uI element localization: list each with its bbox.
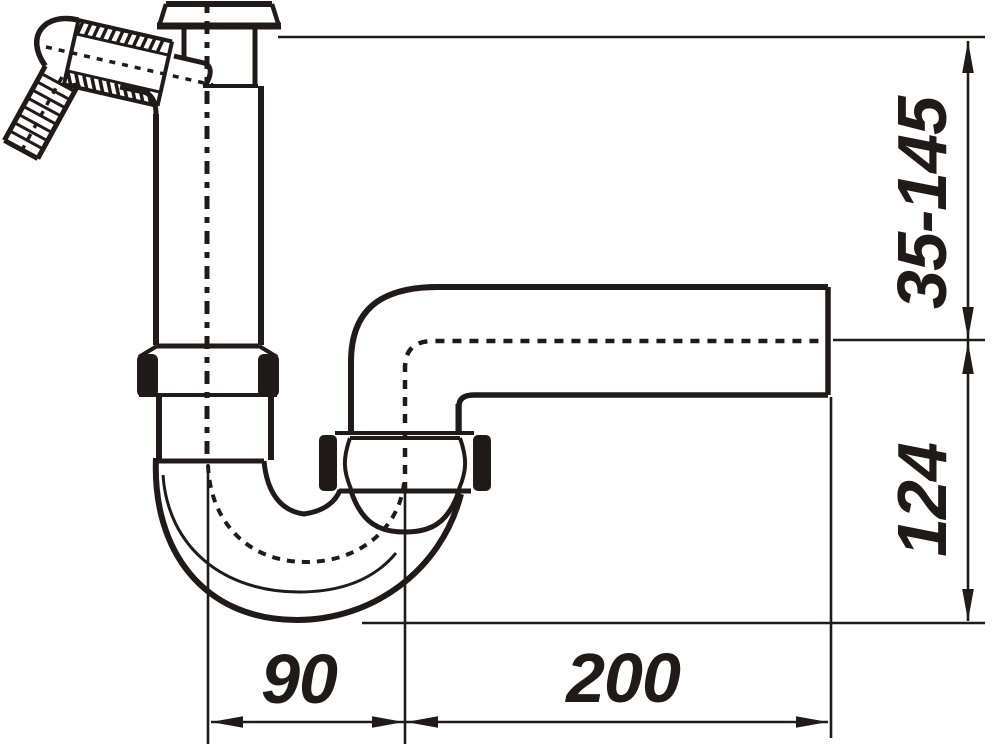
- arrow-up-mid: [962, 342, 974, 374]
- arrow-right-90: [372, 716, 404, 728]
- extension-lines: [208, 37, 985, 744]
- arrow-right-200: [796, 716, 828, 728]
- outlet-pipe: [351, 287, 828, 491]
- hose-nut: [64, 20, 172, 106]
- nut-flat-left: [137, 354, 158, 397]
- dim-label-height-range: 35-145: [883, 95, 961, 309]
- arrow-up-top: [962, 41, 974, 73]
- outlet-bottom: [459, 395, 828, 433]
- drawing-canvas: 35-145 124 90 200: [0, 0, 992, 748]
- outlet-centerline: [405, 341, 826, 491]
- siphon-technical-drawing: 35-145 124 90 200: [0, 0, 992, 748]
- u-bend-outer: [156, 458, 461, 620]
- arrow-down-bottom: [962, 589, 974, 621]
- cup-nut-rib-right: [473, 435, 491, 491]
- dim-label-outlet-length: 200: [564, 639, 681, 717]
- dim-label-trap-width: 90: [261, 640, 338, 718]
- dimension-labels: 35-145 124 90 200: [261, 95, 961, 718]
- dimension-arrows: [211, 41, 974, 728]
- arrow-left-90: [211, 716, 243, 728]
- dim-label-outlet-drop: 124: [883, 443, 961, 557]
- arrow-left-200: [406, 716, 438, 728]
- arrow-down-mid: [962, 307, 974, 339]
- cup-nut-rib-left: [319, 435, 337, 491]
- nut-flat-right: [258, 354, 279, 397]
- u-bend: [156, 458, 461, 620]
